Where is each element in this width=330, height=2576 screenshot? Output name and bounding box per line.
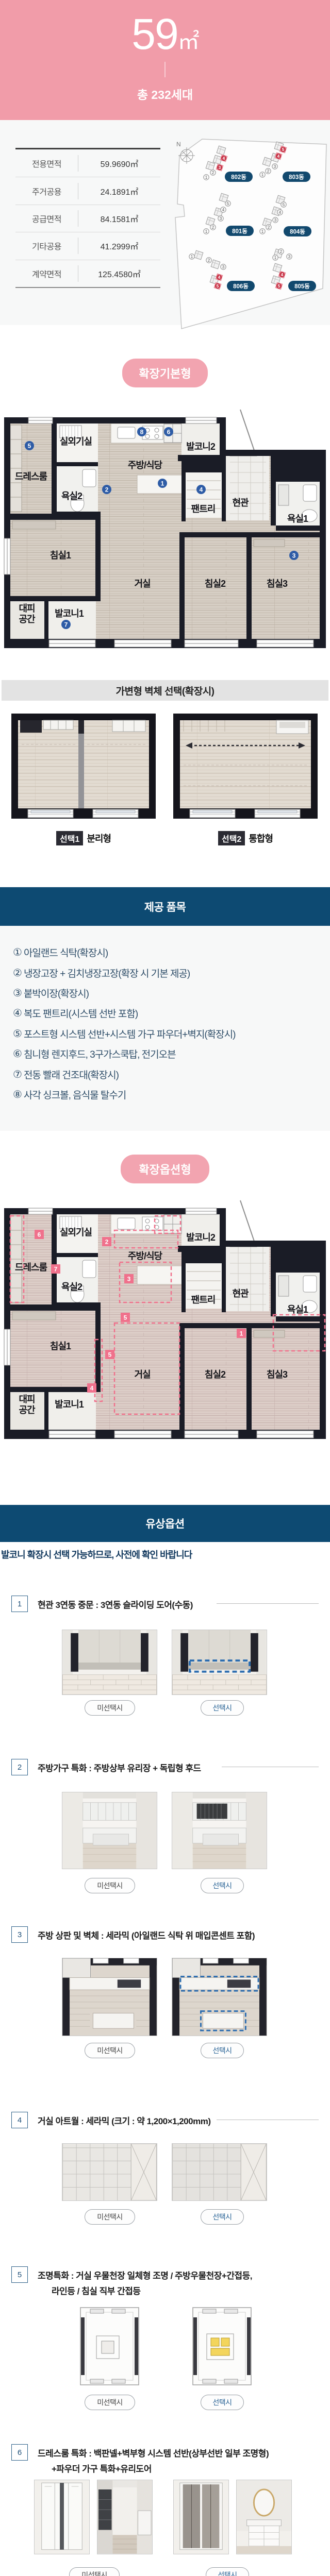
svg-text:1: 1 bbox=[161, 480, 164, 487]
svg-text:3: 3 bbox=[292, 552, 296, 560]
svg-text:대피: 대피 bbox=[19, 1394, 35, 1404]
svg-text:욕실2: 욕실2 bbox=[61, 1282, 82, 1292]
svg-text:주방/식당: 주방/식당 bbox=[128, 460, 163, 470]
svg-text:대피: 대피 bbox=[19, 603, 35, 614]
svg-text:침실3: 침실3 bbox=[267, 579, 288, 589]
svg-text:발코니1: 발코니1 bbox=[55, 608, 84, 619]
svg-text:5: 5 bbox=[217, 284, 219, 289]
svg-text:3: 3 bbox=[274, 164, 276, 169]
svg-text:2: 2 bbox=[212, 171, 214, 175]
svg-text:4: 4 bbox=[200, 486, 203, 494]
svg-text:실외기실: 실외기실 bbox=[60, 436, 92, 447]
svg-text:4: 4 bbox=[279, 210, 282, 215]
svg-text:3: 3 bbox=[127, 1276, 131, 1283]
svg-text:5: 5 bbox=[282, 147, 285, 152]
svg-text:801동: 801동 bbox=[232, 228, 247, 235]
svg-text:5: 5 bbox=[278, 284, 280, 289]
svg-text:3: 3 bbox=[288, 255, 291, 259]
svg-text:5: 5 bbox=[283, 202, 285, 207]
svg-text:실외기실: 실외기실 bbox=[60, 1227, 92, 1238]
svg-text:주방/식당: 주방/식당 bbox=[128, 1251, 163, 1261]
svg-text:4: 4 bbox=[90, 1385, 94, 1392]
svg-text:2: 2 bbox=[105, 486, 109, 494]
svg-text:발코니2: 발코니2 bbox=[186, 1232, 216, 1243]
svg-text:1: 1 bbox=[205, 229, 208, 234]
svg-text:팬트리: 팬트리 bbox=[191, 504, 216, 514]
svg-text:804동: 804동 bbox=[290, 229, 305, 235]
svg-text:발코니1: 발코니1 bbox=[55, 1399, 84, 1410]
svg-text:2: 2 bbox=[280, 249, 283, 254]
svg-text:욕실1: 욕실1 bbox=[287, 1304, 308, 1315]
svg-text:드레스룸: 드레스룸 bbox=[15, 471, 47, 482]
svg-text:2: 2 bbox=[267, 169, 270, 174]
svg-text:5: 5 bbox=[28, 443, 31, 450]
svg-text:침실1: 침실1 bbox=[50, 550, 71, 561]
svg-text:침실1: 침실1 bbox=[50, 1341, 71, 1351]
svg-text:7: 7 bbox=[54, 1266, 58, 1273]
svg-text:거실: 거실 bbox=[134, 1369, 151, 1380]
svg-text:4: 4 bbox=[277, 154, 280, 159]
svg-text:2: 2 bbox=[208, 258, 210, 263]
svg-text:1: 1 bbox=[240, 1330, 243, 1337]
svg-text:3: 3 bbox=[222, 265, 225, 269]
svg-text:2: 2 bbox=[212, 225, 214, 230]
svg-text:드레스룸: 드레스룸 bbox=[15, 1262, 47, 1273]
svg-text:805동: 805동 bbox=[294, 283, 310, 290]
svg-text:6: 6 bbox=[38, 1231, 41, 1239]
svg-text:4: 4 bbox=[222, 208, 225, 212]
svg-text:803동: 803동 bbox=[289, 174, 304, 181]
svg-text:1: 1 bbox=[205, 175, 208, 180]
svg-text:3: 3 bbox=[274, 218, 277, 223]
svg-text:4: 4 bbox=[223, 156, 225, 161]
svg-text:7: 7 bbox=[64, 621, 68, 629]
svg-text:N: N bbox=[176, 141, 181, 148]
svg-text:3: 3 bbox=[220, 216, 222, 221]
svg-text:현관: 현관 bbox=[232, 498, 249, 508]
svg-text:발코니2: 발코니2 bbox=[186, 442, 216, 452]
svg-text:2: 2 bbox=[105, 1239, 109, 1246]
svg-text:5: 5 bbox=[227, 201, 229, 206]
svg-text:5: 5 bbox=[108, 1351, 112, 1359]
svg-text:6: 6 bbox=[167, 429, 171, 436]
svg-text:806동: 806동 bbox=[233, 283, 249, 290]
svg-text:2: 2 bbox=[268, 225, 270, 230]
svg-text:3: 3 bbox=[219, 165, 221, 170]
svg-text:1: 1 bbox=[274, 256, 277, 260]
svg-text:802동: 802동 bbox=[231, 174, 246, 181]
svg-text:현관: 현관 bbox=[232, 1289, 249, 1299]
svg-text:8: 8 bbox=[140, 429, 144, 436]
svg-text:팬트리: 팬트리 bbox=[191, 1295, 216, 1305]
svg-text:1: 1 bbox=[191, 255, 193, 259]
svg-text:침실2: 침실2 bbox=[205, 579, 226, 589]
svg-text:1: 1 bbox=[261, 229, 264, 234]
svg-text:4: 4 bbox=[218, 275, 221, 280]
svg-text:4: 4 bbox=[281, 273, 284, 277]
svg-text:거실: 거실 bbox=[134, 579, 151, 589]
svg-text:공간: 공간 bbox=[19, 614, 36, 624]
svg-text:공간: 공간 bbox=[19, 1405, 36, 1415]
svg-text:5: 5 bbox=[124, 1314, 127, 1321]
svg-text:침실3: 침실3 bbox=[267, 1369, 288, 1380]
svg-text:1: 1 bbox=[261, 173, 264, 177]
svg-text:욕실1: 욕실1 bbox=[287, 514, 308, 524]
svg-text:욕실2: 욕실2 bbox=[61, 491, 82, 501]
svg-text:침실2: 침실2 bbox=[205, 1369, 226, 1380]
